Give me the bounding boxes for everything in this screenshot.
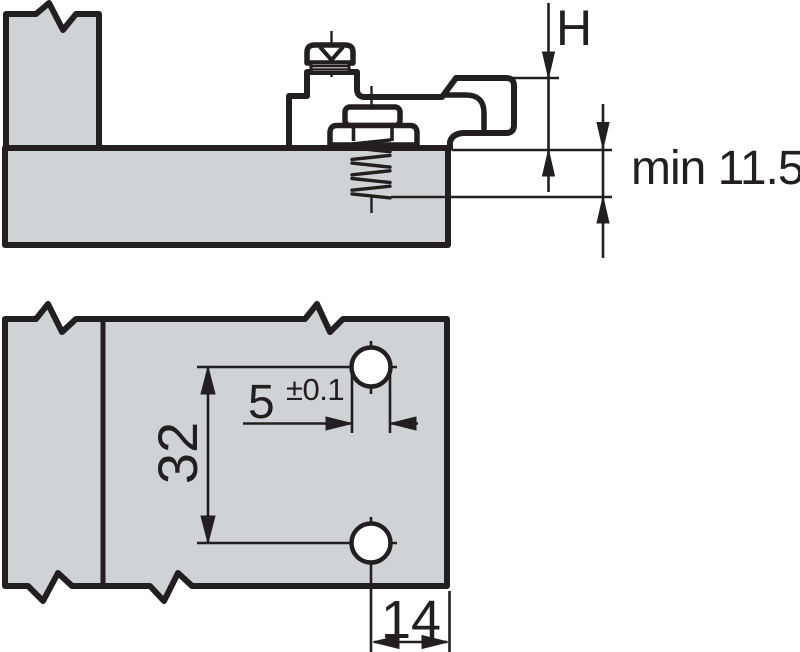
plan-view: 32 5 ±0.1 14	[5, 304, 450, 652]
arrow-up-icon	[597, 197, 609, 223]
height-adjustment-screw	[307, 31, 353, 77]
vertical-panel	[6, 3, 99, 148]
dimension-plate-height: H	[511, 0, 592, 192]
label-hole-diameter-tolerance: ±0.1	[286, 372, 344, 407]
arrow-down-icon	[597, 123, 609, 149]
technical-drawing: H min 11.5 32	[0, 0, 800, 652]
label-plate-height: H	[556, 0, 592, 56]
bottom-system-hole	[352, 524, 391, 563]
label-edge-distance: 14	[381, 590, 441, 650]
adjustment-screw-thread	[311, 63, 349, 73]
arrow-up-icon	[543, 150, 555, 176]
dimension-edge-distance: 14	[373, 590, 450, 652]
label-hole-diameter: 5	[248, 376, 275, 429]
top-system-hole	[352, 348, 391, 387]
arrow-down-icon	[543, 52, 555, 78]
dimension-min-depth: min 11.5	[597, 104, 800, 258]
label-min-depth: min 11.5	[631, 142, 800, 195]
label-hole-spacing: 32	[146, 422, 209, 484]
side-view: H min 11.5	[5, 0, 800, 258]
fixing-screw-head	[345, 107, 400, 126]
